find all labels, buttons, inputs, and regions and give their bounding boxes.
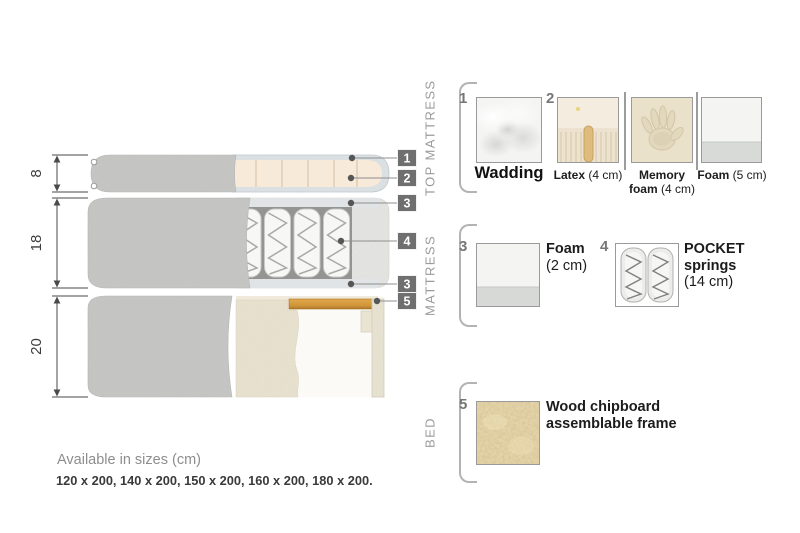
frame-bracket (361, 311, 372, 332)
dimension-20-label: 20 (28, 338, 45, 355)
dimension-18-label: 18 (28, 235, 45, 252)
memory-foam-image (631, 97, 693, 163)
callout-badge-3-bottom: 3 (398, 276, 417, 293)
svg-text:3: 3 (404, 197, 411, 211)
legend-number-2: 2 (546, 90, 554, 107)
pocket-spring-icon (648, 248, 673, 302)
legend-divider (624, 92, 626, 170)
foam-2cm-image (476, 243, 540, 307)
dimension-8-arrow (52, 155, 88, 192)
wood-slat (289, 299, 374, 309)
legend-number-3: 3 (459, 238, 467, 255)
dimension-18-arrow (52, 198, 88, 288)
available-sizes-list: 120 x 200, 140 x 200, 150 x 200, 160 x 2… (56, 473, 373, 488)
pocket-springs-label: POCKET springs (14 cm) (684, 241, 744, 291)
mattress-button-icon (91, 183, 97, 189)
svg-text:3: 3 (404, 278, 411, 292)
wood-chipboard-label: Wood chipboard assemblable frame (546, 399, 677, 432)
wood-chipboard-image (476, 401, 540, 465)
mattress-infographic: 8 18 20 (0, 0, 800, 533)
pocket-springs-image (615, 243, 679, 307)
dimension-20-arrow (52, 296, 88, 397)
callout-badge-2: 2 (398, 170, 417, 187)
svg-text:5: 5 (404, 295, 411, 309)
frame-side-board (372, 299, 384, 397)
callout-badge-1: 1 (398, 150, 417, 167)
section-title-bed: BED (418, 382, 442, 483)
svg-text:1: 1 (404, 152, 411, 166)
dimension-8-label: 8 (28, 169, 45, 177)
svg-text:4: 4 (404, 235, 411, 249)
callout-badge-4: 4 (398, 233, 417, 250)
bed-base-layer (88, 296, 384, 397)
callout-badges: 1 2 3 4 3 5 (398, 150, 417, 310)
mattress-layer (88, 198, 389, 288)
mattress-button-icon (91, 159, 97, 165)
foam-5cm-image (701, 97, 762, 163)
latex-image (557, 97, 619, 163)
callout-badge-3-top: 3 (398, 195, 417, 212)
svg-text:2: 2 (404, 172, 411, 186)
pocket-spring-icon (621, 248, 646, 302)
callout-badge-5: 5 (398, 293, 417, 310)
available-sizes-title: Available in sizes (cm) (57, 452, 201, 468)
wadding-label: Wadding (466, 164, 552, 183)
legend-divider (696, 92, 698, 170)
legend-number-4: 4 (600, 238, 608, 255)
section-title-top-mattress: TOP MATTRESS (418, 82, 442, 193)
legend-number-1: 1 (459, 90, 467, 107)
legend-number-5: 5 (459, 396, 467, 413)
latex-label: Latex (4 cm) (548, 168, 628, 182)
foam-2cm-label: Foam (2 cm) (546, 241, 587, 274)
finger-press-icon (584, 126, 593, 162)
foam-5cm-label: Foam (5 cm) (692, 168, 772, 182)
wadding-image (476, 97, 542, 163)
section-title-mattress: MATTRESS (418, 224, 442, 327)
top-mattress-layer (91, 155, 389, 192)
